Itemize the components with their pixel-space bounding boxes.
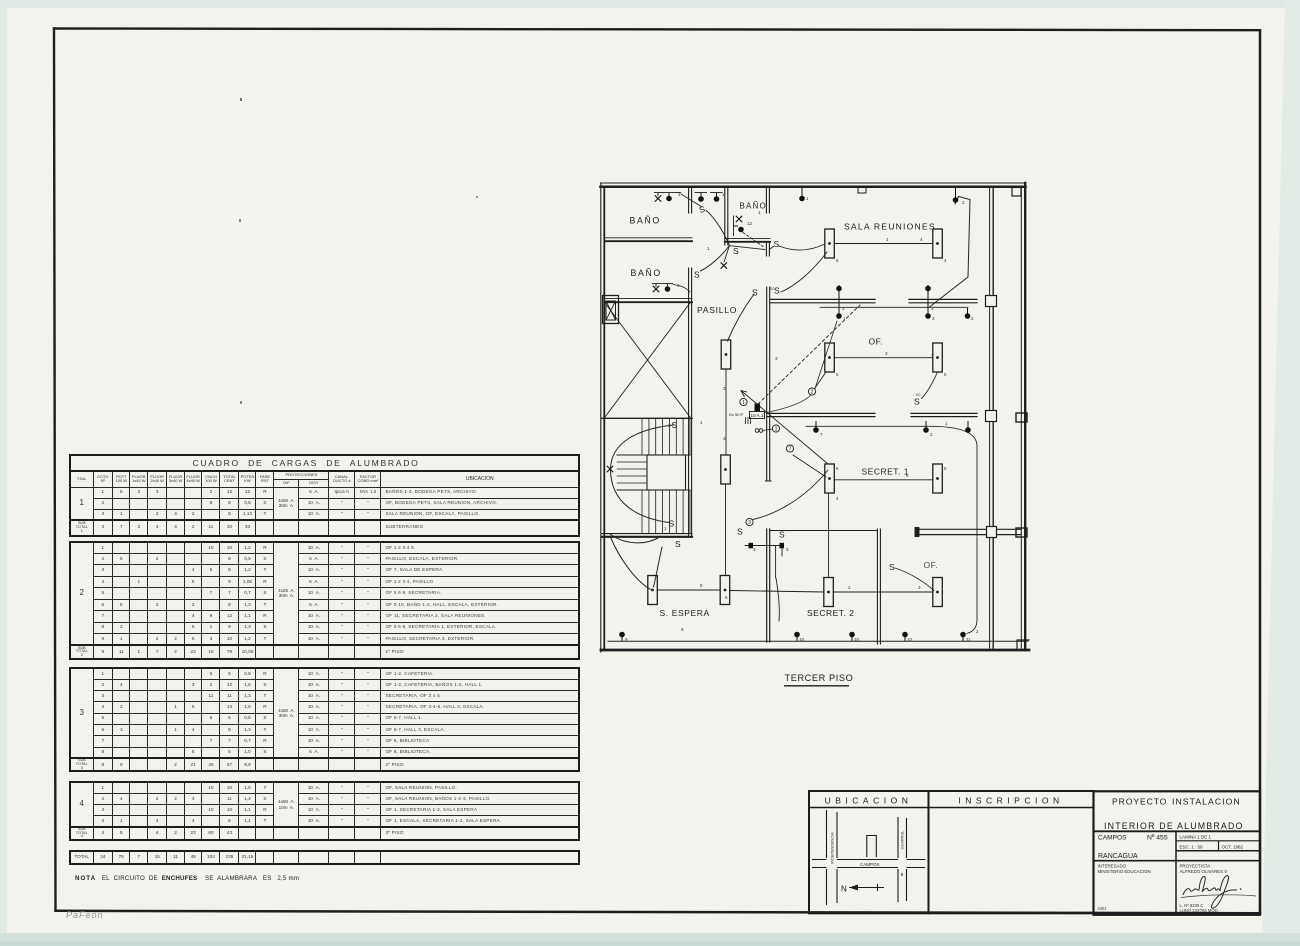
- svg-text:10: 10: [854, 637, 860, 642]
- svg-text:1: 1: [806, 196, 809, 201]
- svg-text:3: 3: [932, 316, 935, 321]
- svg-text:2: 2: [962, 200, 965, 205]
- svg-text:3: 3: [786, 547, 789, 552]
- svg-text:BAÑO: BAÑO: [630, 216, 661, 226]
- svg-text:9: 9: [681, 627, 684, 632]
- svg-text:PASILLO: PASILLO: [697, 305, 737, 315]
- svg-text:SECRET. 2: SECRET. 2: [807, 608, 855, 618]
- svg-text:6: 6: [836, 466, 839, 471]
- svg-text:S: S: [694, 270, 700, 280]
- svg-text:S: S: [669, 519, 675, 529]
- svg-text:LUNO 23X764 MOD.: LUNO 23X764 MOD.: [1180, 908, 1219, 913]
- svg-text:6: 6: [836, 258, 839, 263]
- svg-text:10: 10: [907, 637, 913, 642]
- svg-text:S: S: [675, 539, 681, 549]
- svg-text:1: 1: [664, 526, 667, 531]
- svg-text:12: 12: [747, 221, 753, 226]
- svg-text:6: 6: [725, 595, 728, 600]
- svg-text:S: S: [698, 204, 706, 215]
- svg-text:1: 1: [677, 283, 680, 288]
- svg-text:8: 8: [700, 583, 703, 588]
- svg-text:S: S: [914, 397, 920, 407]
- svg-text:LAMINA 1 DE 1: LAMINA 1 DE 1: [1180, 835, 1212, 840]
- svg-text:5: 5: [944, 466, 947, 471]
- svg-text:2: 2: [976, 629, 979, 634]
- svg-text:1: 1: [722, 192, 725, 197]
- svg-text:MINISTERIO EDUCACION: MINISTERIO EDUCACION: [1098, 869, 1151, 874]
- svg-text:PROYECTISTA: PROYECTISTA: [1180, 864, 1211, 869]
- svg-text:1983: 1983: [1097, 906, 1107, 911]
- svg-text:SECRET. 1: SECRET. 1: [862, 467, 910, 477]
- svg-text:N: N: [841, 885, 847, 894]
- svg-text:1: 1: [886, 237, 889, 242]
- svg-text:3: 3: [931, 306, 934, 311]
- svg-text:3: 3: [753, 547, 756, 552]
- svg-text:TERCER PISO: TERCER PISO: [785, 673, 854, 683]
- svg-text:7: 7: [820, 432, 823, 437]
- svg-text:S: S: [733, 246, 739, 256]
- svg-text:10 A.1: 10 A.1: [751, 413, 764, 418]
- svg-text:1: 1: [758, 210, 761, 215]
- svg-text:3: 3: [723, 386, 726, 391]
- svg-text:S: S: [889, 562, 895, 572]
- svg-text:1: 1: [945, 421, 948, 426]
- svg-text:RANCAGUA: RANCAGUA: [1098, 853, 1138, 860]
- svg-text:3: 3: [723, 436, 726, 441]
- svg-text:4: 4: [920, 237, 923, 242]
- svg-text:INSCRIPCION: INSCRIPCION: [958, 796, 1063, 806]
- svg-text:cc: cc: [770, 286, 775, 291]
- svg-text:OCT. 1982: OCT. 1982: [1222, 844, 1244, 849]
- svg-text:S: S: [774, 239, 780, 249]
- svg-text:3: 3: [842, 306, 845, 311]
- svg-text:OF.: OF.: [924, 560, 939, 570]
- svg-text:BAÑO: BAÑO: [740, 202, 767, 211]
- svg-text:S: S: [774, 286, 780, 296]
- svg-text:PROYECTO: PROYECTO: [1112, 797, 1167, 807]
- svg-text:1: 1: [843, 316, 846, 321]
- svg-text:5: 5: [944, 372, 947, 377]
- svg-text:S: S: [737, 527, 743, 537]
- svg-text:INSTALACION: INSTALACION: [1172, 797, 1241, 807]
- svg-text:4: 4: [836, 496, 839, 501]
- svg-text:INTERIOR DE ALUMBRADO: INTERIOR DE ALUMBRADO: [1104, 821, 1244, 831]
- svg-text:1: 1: [700, 420, 703, 425]
- svg-text:3: 3: [885, 351, 888, 356]
- svg-text:INDEPENDENCIA: INDEPENDENCIA: [831, 832, 835, 864]
- svg-text:4: 4: [944, 258, 947, 263]
- svg-text:ALFREDO OLIVARES V: ALFREDO OLIVARES V: [1180, 869, 1228, 874]
- svg-text:OF.: OF.: [869, 337, 884, 347]
- svg-text:S: S: [752, 288, 758, 298]
- svg-text:1: 1: [678, 192, 681, 197]
- svg-text:CAMPOS: CAMPOS: [1098, 835, 1127, 842]
- svg-text:SALA REUNIONES: SALA REUNIONES: [844, 222, 936, 232]
- svg-text:S. ESPERA: S. ESPERA: [660, 608, 710, 618]
- svg-text:Nº 455: Nº 455: [1147, 835, 1168, 842]
- svg-text:4: 4: [931, 352, 934, 357]
- svg-text:2: 2: [848, 585, 851, 590]
- svg-text:3: 3: [775, 356, 778, 361]
- svg-text:1: 1: [707, 246, 710, 251]
- svg-text:3: 3: [918, 585, 921, 590]
- svg-text:5: 5: [836, 372, 839, 377]
- svg-text:cc: cc: [916, 392, 921, 397]
- svg-text:BAÑO: BAÑO: [631, 268, 662, 278]
- svg-text:2: 2: [971, 316, 974, 321]
- svg-text:11: 11: [966, 637, 971, 642]
- svg-text:S: S: [672, 420, 678, 430]
- svg-text:2: 2: [930, 432, 933, 437]
- svg-text:Dc 50 P: Dc 50 P: [729, 412, 744, 417]
- svg-text:ESC. 1 : 50: ESC. 1 : 50: [1180, 844, 1204, 849]
- svg-text:UBICACION: UBICACION: [825, 796, 913, 806]
- svg-text:9: 9: [625, 637, 628, 642]
- svg-text:INTERESADO: INTERESADO: [1098, 864, 1127, 869]
- svg-text:OCARROL: OCARROL: [901, 831, 905, 850]
- svg-text:10: 10: [799, 637, 805, 642]
- svg-text:S: S: [779, 530, 785, 540]
- svg-text:CAMPOS: CAMPOS: [860, 862, 880, 867]
